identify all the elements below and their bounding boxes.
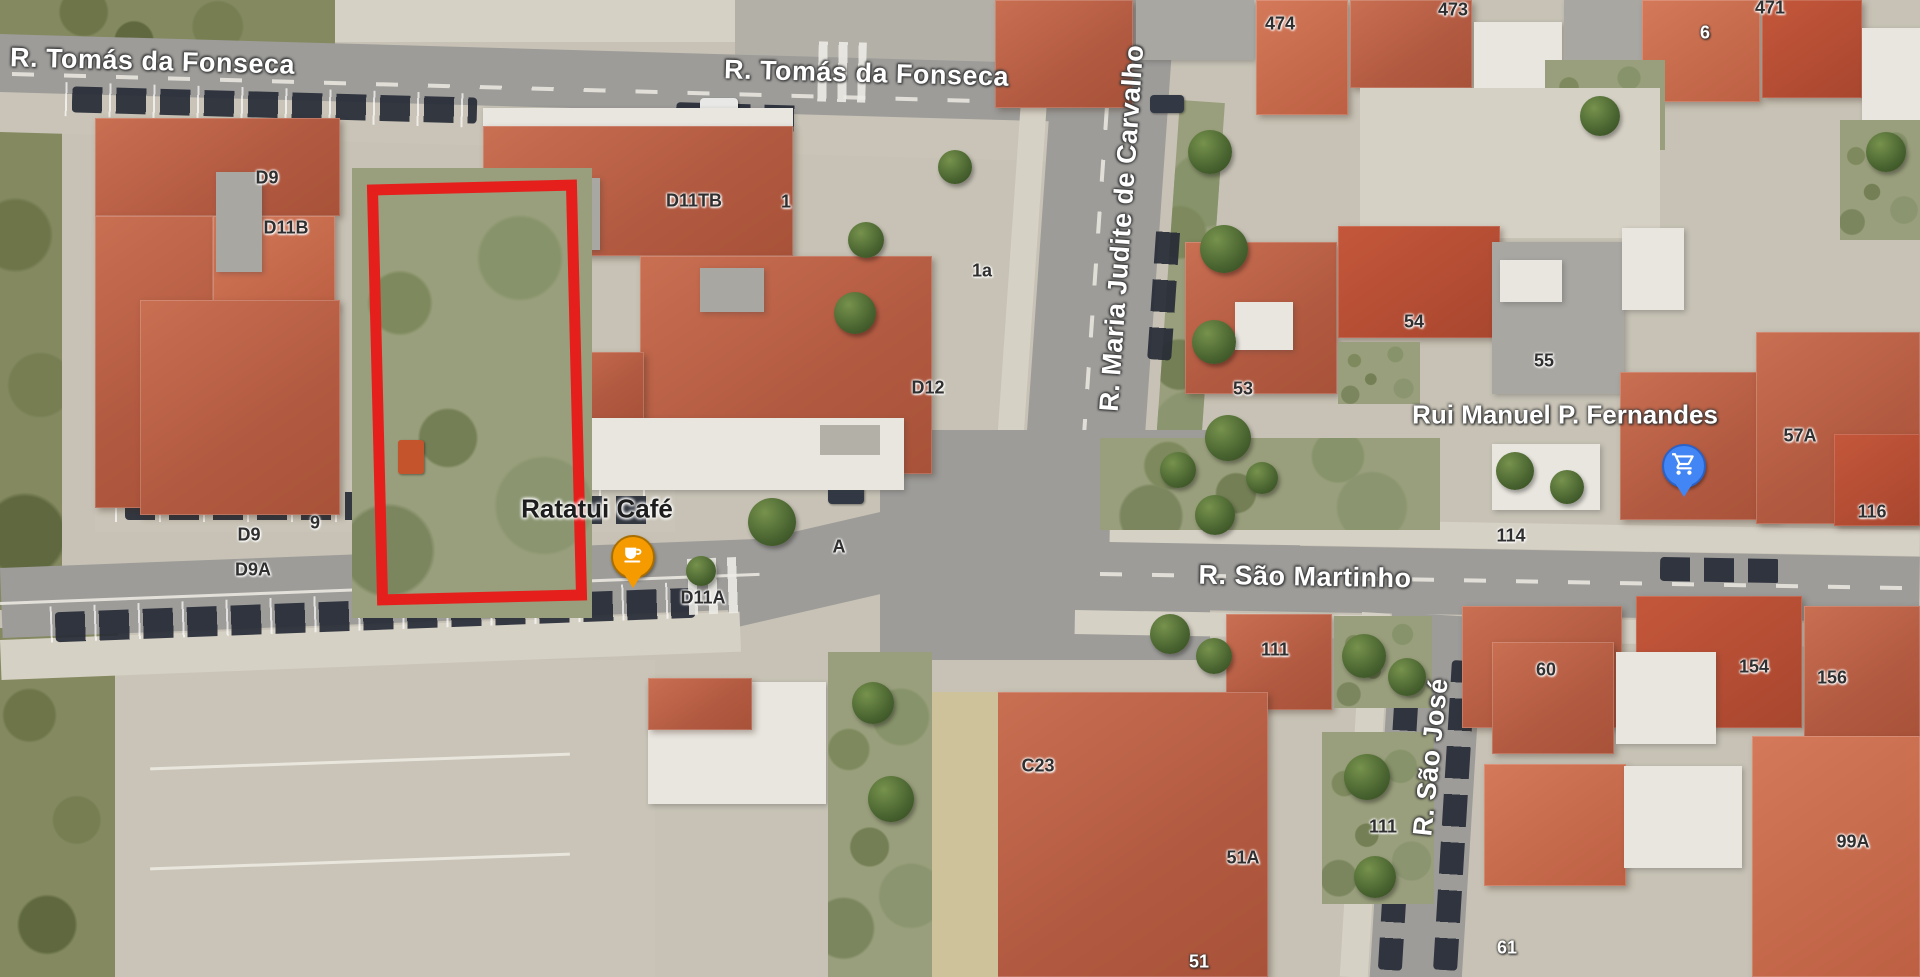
tree xyxy=(1580,96,1620,136)
building-roof xyxy=(1350,0,1472,88)
building-roof xyxy=(1492,642,1614,754)
poi-label-ratatui-cafe[interactable]: Ratatui Café xyxy=(521,494,673,525)
building-roof xyxy=(1256,0,1348,115)
tree xyxy=(1195,495,1235,535)
tree xyxy=(1192,320,1236,364)
tree xyxy=(1246,462,1278,494)
building xyxy=(1862,28,1920,128)
building xyxy=(1616,652,1716,744)
building xyxy=(1624,766,1742,868)
rooftop-structure xyxy=(820,425,880,455)
tree xyxy=(938,150,972,184)
tree xyxy=(834,292,876,334)
rooftop-structure xyxy=(700,268,764,312)
building xyxy=(483,108,793,128)
building-label: 1a xyxy=(972,261,992,282)
sidewalk xyxy=(335,0,735,42)
tree xyxy=(1866,132,1906,172)
poi-label-rui-manuel-p-fernandes[interactable]: Rui Manuel P. Fernandes xyxy=(1412,400,1718,431)
tree xyxy=(868,776,914,822)
cafe-marker[interactable] xyxy=(611,535,655,588)
highlight-rectangle xyxy=(367,179,587,605)
grass-patch xyxy=(0,628,118,977)
parking-lot xyxy=(115,660,655,977)
rooftop-structure xyxy=(216,172,262,272)
cafe-marker-tail xyxy=(624,574,642,588)
tree xyxy=(748,498,796,546)
tree xyxy=(1150,614,1190,654)
tree xyxy=(1550,470,1584,504)
building-roof xyxy=(995,0,1133,108)
satellite-map[interactable]: R. Tomás da FonsecaR. Tomás da FonsecaR.… xyxy=(0,0,1920,977)
tree xyxy=(1200,225,1248,273)
cart-marker-tail xyxy=(1675,483,1693,497)
tree xyxy=(1205,415,1251,461)
building-roof xyxy=(1752,736,1920,977)
tree xyxy=(852,682,894,724)
shopping-cart-icon xyxy=(1671,451,1697,482)
parked-cars xyxy=(1660,557,1780,583)
grass-patch xyxy=(1338,342,1420,404)
building-roof xyxy=(1834,434,1920,526)
tree xyxy=(1388,658,1426,696)
courtyard xyxy=(1235,302,1293,350)
tree xyxy=(1160,452,1196,488)
building xyxy=(1136,0,1254,60)
building-roof xyxy=(1484,764,1626,886)
tree xyxy=(1354,856,1396,898)
tree xyxy=(1188,130,1232,174)
tree xyxy=(1196,638,1232,674)
building-roof xyxy=(1338,226,1500,338)
tree xyxy=(1344,754,1390,800)
grass-strip xyxy=(0,110,62,610)
cafe-marker-head xyxy=(611,535,655,579)
tree xyxy=(848,222,884,258)
coffee-cup-icon xyxy=(622,544,644,571)
car xyxy=(1150,95,1184,113)
building xyxy=(1500,260,1562,302)
cart-marker-head xyxy=(1662,444,1706,488)
building-roof xyxy=(648,678,752,730)
building-label: 61 xyxy=(1497,938,1517,959)
building-roof xyxy=(1762,0,1862,98)
crosswalk xyxy=(817,41,867,102)
building-roof xyxy=(140,300,340,515)
building-roof xyxy=(996,692,1268,977)
building xyxy=(1564,0,1642,62)
tree xyxy=(1496,452,1534,490)
cart-marker[interactable] xyxy=(1662,444,1706,497)
building-roof xyxy=(1804,606,1920,738)
tree xyxy=(1342,634,1386,678)
building xyxy=(1622,228,1684,310)
tree xyxy=(686,556,716,586)
